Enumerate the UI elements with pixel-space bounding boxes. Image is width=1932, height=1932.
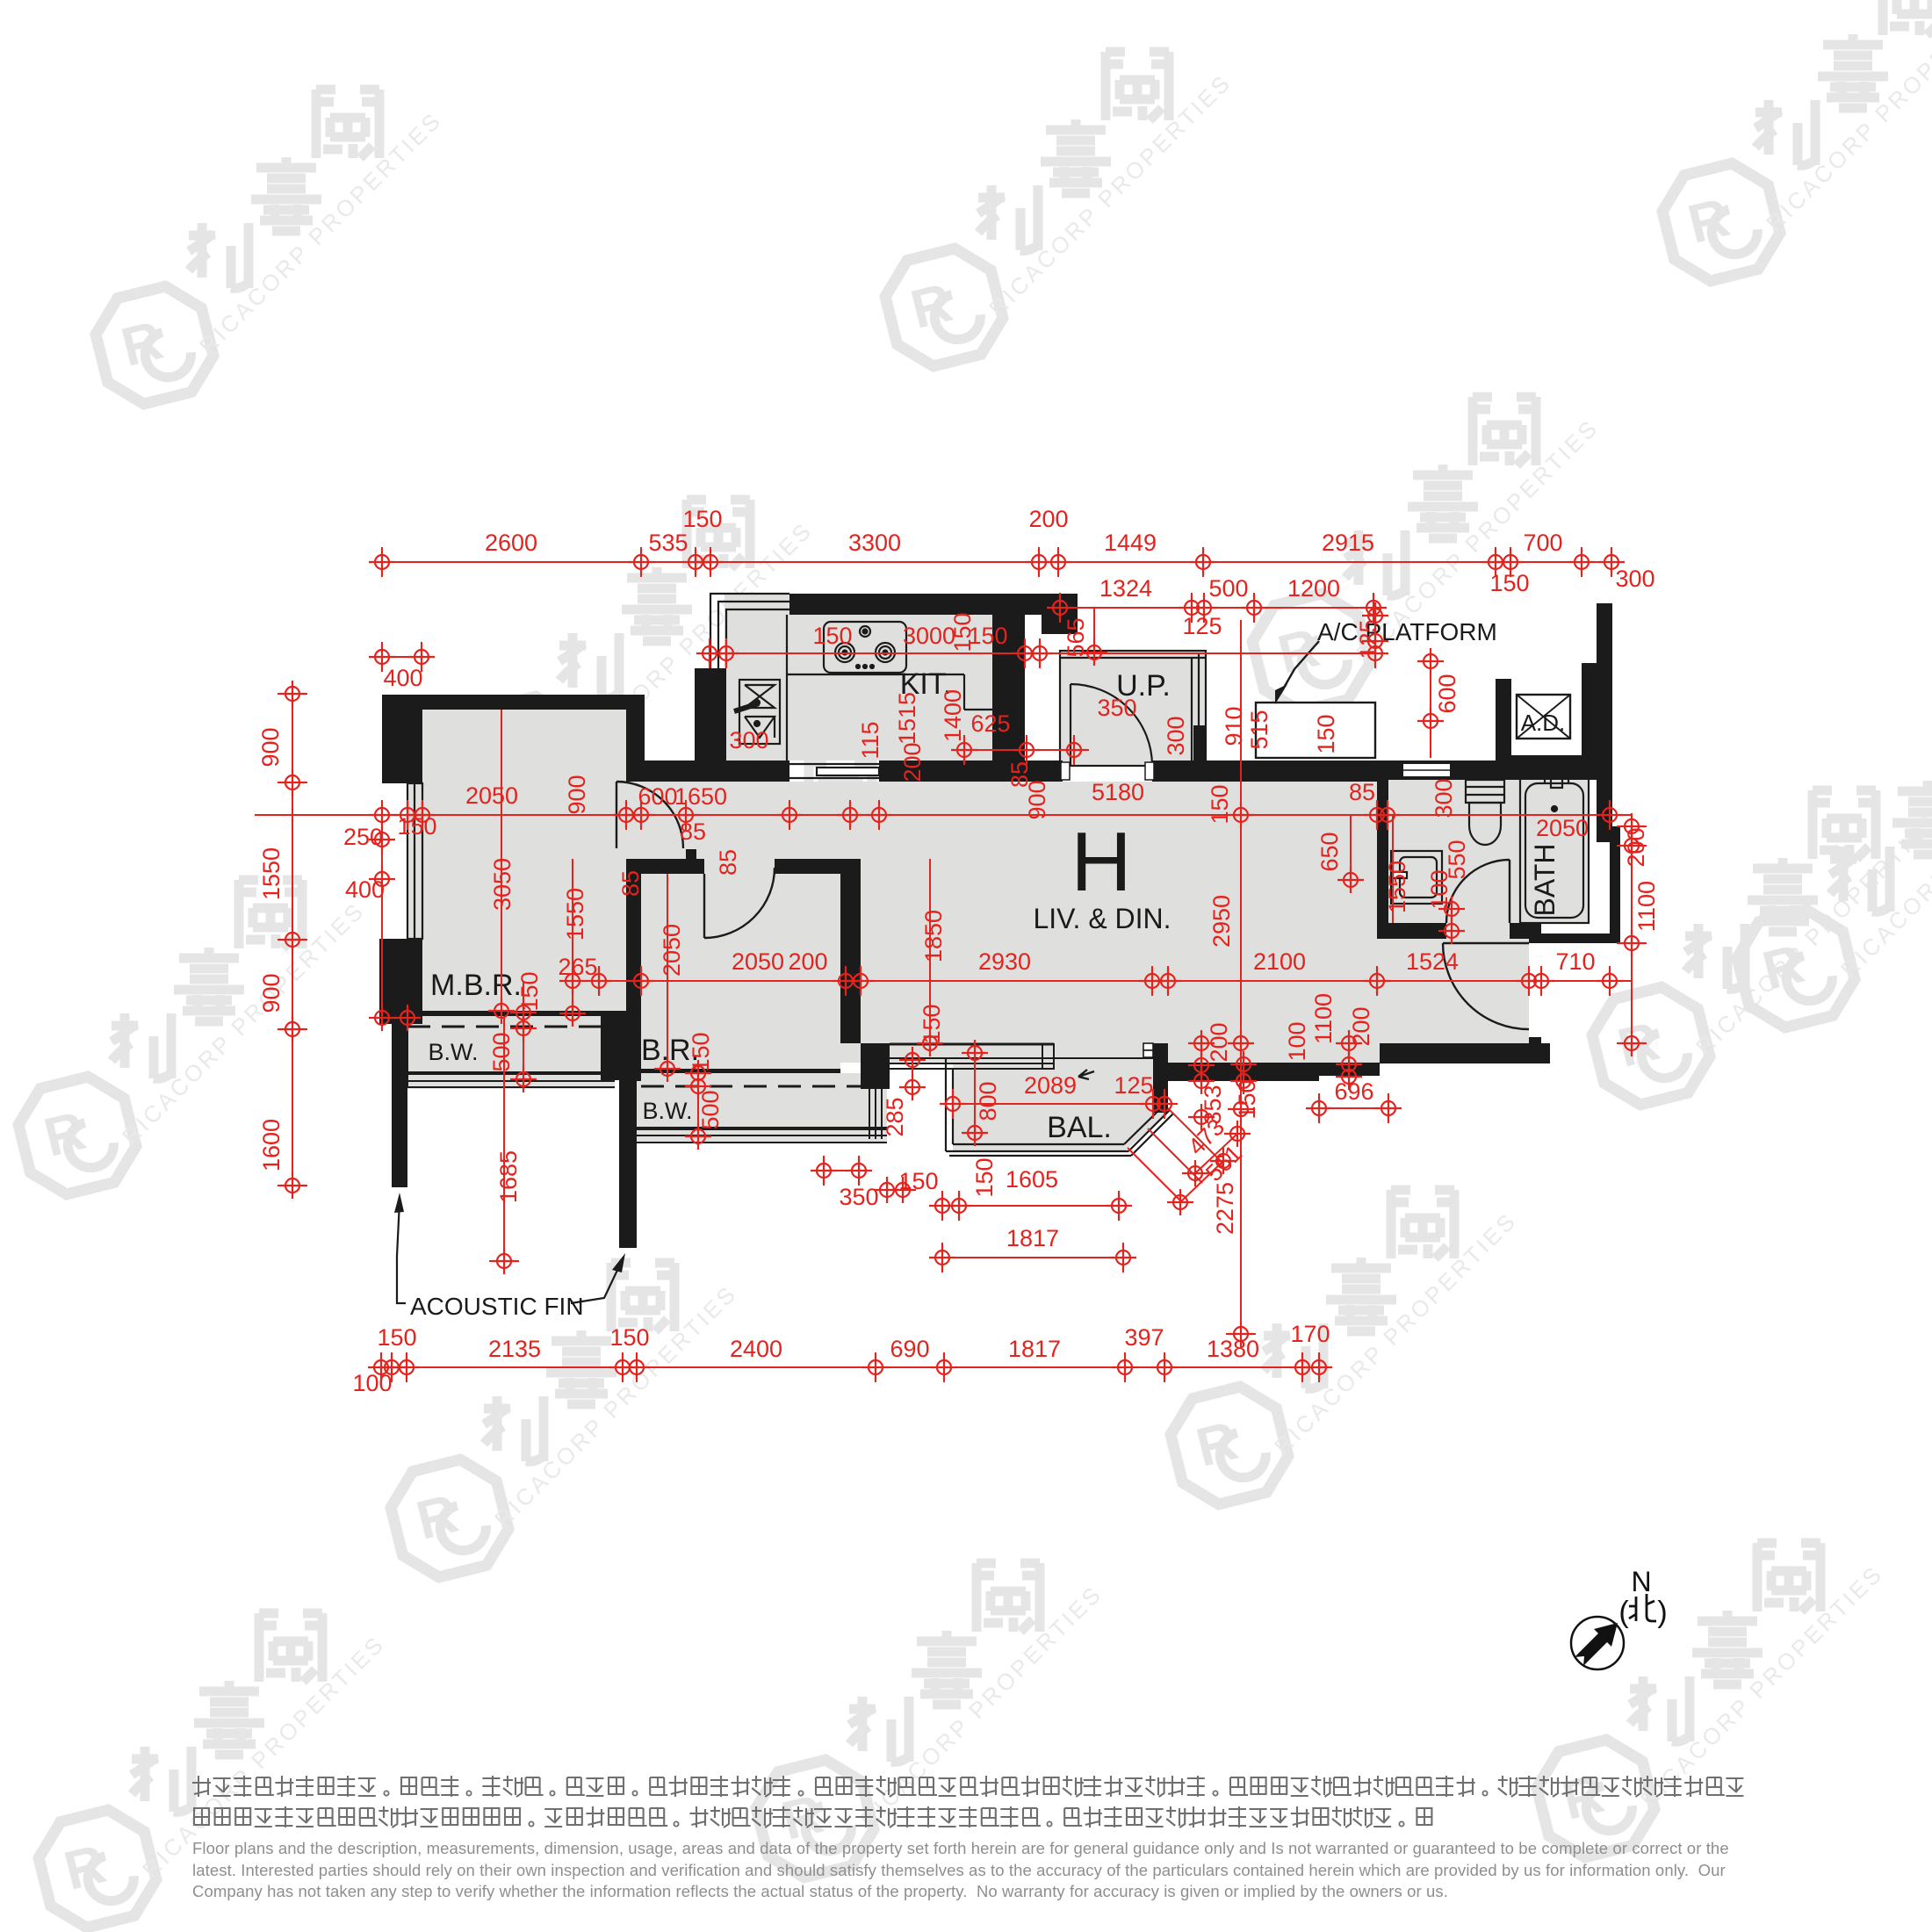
svg-text:1850: 1850 [920, 910, 947, 962]
svg-text:2100: 2100 [1253, 948, 1306, 975]
svg-text:1550: 1550 [1384, 861, 1410, 913]
svg-text:600: 600 [1434, 674, 1460, 713]
svg-text:200: 200 [1348, 1006, 1374, 1046]
svg-text:150: 150 [919, 1004, 945, 1043]
svg-text:B.W.: B.W. [428, 1039, 478, 1065]
svg-text:170: 170 [1290, 1321, 1330, 1347]
svg-text:200: 200 [1028, 506, 1068, 532]
svg-text:2950: 2950 [1208, 895, 1235, 948]
svg-text:1324: 1324 [1099, 575, 1152, 602]
svg-text:125: 125 [1114, 1072, 1153, 1099]
svg-text:150: 150 [1207, 784, 1233, 824]
svg-text:A/C PLATFORM: A/C PLATFORM [1317, 618, 1497, 645]
svg-text:ACOUSTIC FIN: ACOUSTIC FIN [410, 1293, 584, 1320]
svg-text:B.W.: B.W. [642, 1098, 692, 1124]
svg-text:690: 690 [890, 1336, 929, 1362]
svg-text:650: 650 [1316, 832, 1343, 871]
svg-text:625: 625 [970, 710, 1010, 737]
svg-text:1817: 1817 [1006, 1225, 1059, 1251]
svg-text:300: 300 [1615, 566, 1654, 592]
svg-text:3300: 3300 [848, 530, 901, 556]
svg-text:): ) [1657, 1596, 1667, 1629]
svg-text:1380: 1380 [1207, 1336, 1259, 1362]
svg-text:400: 400 [383, 665, 422, 691]
svg-text:200: 200 [788, 948, 827, 975]
svg-text:LIV. & DIN.: LIV. & DIN. [1033, 903, 1171, 934]
svg-text:535: 535 [648, 530, 688, 556]
svg-text:1550: 1550 [562, 888, 588, 941]
svg-text:397: 397 [1124, 1324, 1164, 1351]
svg-text:85: 85 [680, 818, 706, 845]
svg-text:300: 300 [1163, 716, 1189, 755]
svg-text:H: H [1071, 815, 1131, 909]
svg-text:85: 85 [617, 870, 644, 897]
svg-text:2050: 2050 [732, 948, 784, 975]
svg-text:2400: 2400 [730, 1336, 782, 1362]
svg-text:1685: 1685 [495, 1150, 522, 1203]
svg-text:2135: 2135 [488, 1336, 541, 1362]
svg-text:150: 150 [812, 623, 852, 649]
svg-text:A.D.: A.D. [1521, 710, 1566, 736]
svg-text:150: 150 [688, 1032, 714, 1071]
svg-text:1600: 1600 [258, 1119, 285, 1171]
svg-text:150: 150 [1313, 714, 1339, 753]
svg-text:2600: 2600 [485, 530, 537, 556]
svg-text:85: 85 [715, 849, 741, 876]
svg-text:1515: 1515 [894, 692, 920, 745]
svg-text:900: 900 [257, 727, 284, 767]
svg-text:150: 150 [516, 971, 543, 1011]
svg-text:353: 353 [1200, 1085, 1226, 1124]
svg-text:1400: 1400 [940, 689, 966, 742]
svg-text:1100: 1100 [1310, 993, 1337, 1044]
svg-text:N: N [1631, 1566, 1651, 1597]
svg-text:200: 200 [1623, 827, 1649, 867]
svg-text:350: 350 [839, 1184, 878, 1210]
svg-text:M.B.R.: M.B.R. [430, 969, 522, 1002]
svg-text:515: 515 [1246, 710, 1272, 749]
svg-text:1524: 1524 [1406, 948, 1459, 975]
svg-text:565: 565 [1063, 617, 1089, 657]
svg-text:2089: 2089 [1024, 1072, 1077, 1099]
svg-text:1650: 1650 [674, 783, 727, 810]
svg-text:400: 400 [345, 876, 385, 903]
svg-text:710: 710 [1555, 948, 1595, 975]
svg-text:2915: 2915 [1322, 530, 1374, 556]
svg-text:300: 300 [729, 727, 768, 753]
svg-text:150: 150 [898, 1168, 938, 1194]
svg-text:900: 900 [564, 775, 590, 814]
svg-text:900: 900 [1024, 780, 1050, 819]
svg-text:265: 265 [558, 954, 597, 980]
svg-text:1449: 1449 [1104, 530, 1157, 556]
svg-text:150: 150 [949, 612, 976, 652]
svg-text:150: 150 [377, 1324, 416, 1351]
svg-text:2050: 2050 [465, 782, 518, 809]
svg-text:2930: 2930 [978, 948, 1031, 975]
svg-text:1550: 1550 [258, 847, 285, 900]
svg-text:500: 500 [697, 1090, 724, 1129]
svg-text:600: 600 [638, 783, 677, 810]
svg-text:900: 900 [258, 973, 285, 1013]
svg-text:1200: 1200 [1287, 575, 1340, 602]
svg-text:300: 300 [1431, 778, 1457, 818]
svg-text:350: 350 [1097, 695, 1136, 721]
svg-text:100: 100 [352, 1370, 392, 1396]
svg-text:1817: 1817 [1008, 1336, 1061, 1362]
svg-text:BAL.: BAL. [1047, 1111, 1112, 1144]
svg-text:800: 800 [975, 1081, 1001, 1121]
svg-text:5180: 5180 [1092, 779, 1144, 805]
svg-text:3000: 3000 [903, 623, 955, 649]
svg-text:85: 85 [1349, 779, 1375, 805]
svg-text:100: 100 [1284, 1021, 1310, 1061]
svg-text:2050: 2050 [1536, 815, 1589, 841]
svg-text:910: 910 [1221, 706, 1247, 746]
svg-text:125: 125 [1182, 613, 1222, 639]
svg-text:150: 150 [609, 1324, 649, 1351]
svg-text:(: ( [1618, 1596, 1629, 1629]
svg-text:2050: 2050 [659, 924, 685, 977]
svg-text:150: 150 [397, 813, 436, 840]
svg-text:2275: 2275 [1212, 1182, 1238, 1235]
svg-text:150: 150 [1489, 570, 1529, 596]
svg-text:1605: 1605 [1006, 1166, 1058, 1193]
svg-text:285: 285 [882, 1097, 908, 1136]
svg-text:3050: 3050 [489, 858, 515, 911]
svg-text:150: 150 [971, 1157, 998, 1197]
svg-text:200: 200 [899, 742, 926, 782]
svg-text:250: 250 [343, 824, 383, 850]
svg-text:BATH: BATH [1529, 844, 1561, 917]
svg-text:500: 500 [1208, 575, 1248, 602]
svg-text:500: 500 [488, 1032, 515, 1071]
svg-text:115: 115 [857, 721, 883, 759]
svg-text:700: 700 [1523, 530, 1562, 556]
svg-text:1100: 1100 [1633, 881, 1660, 932]
svg-text:150: 150 [682, 506, 722, 532]
